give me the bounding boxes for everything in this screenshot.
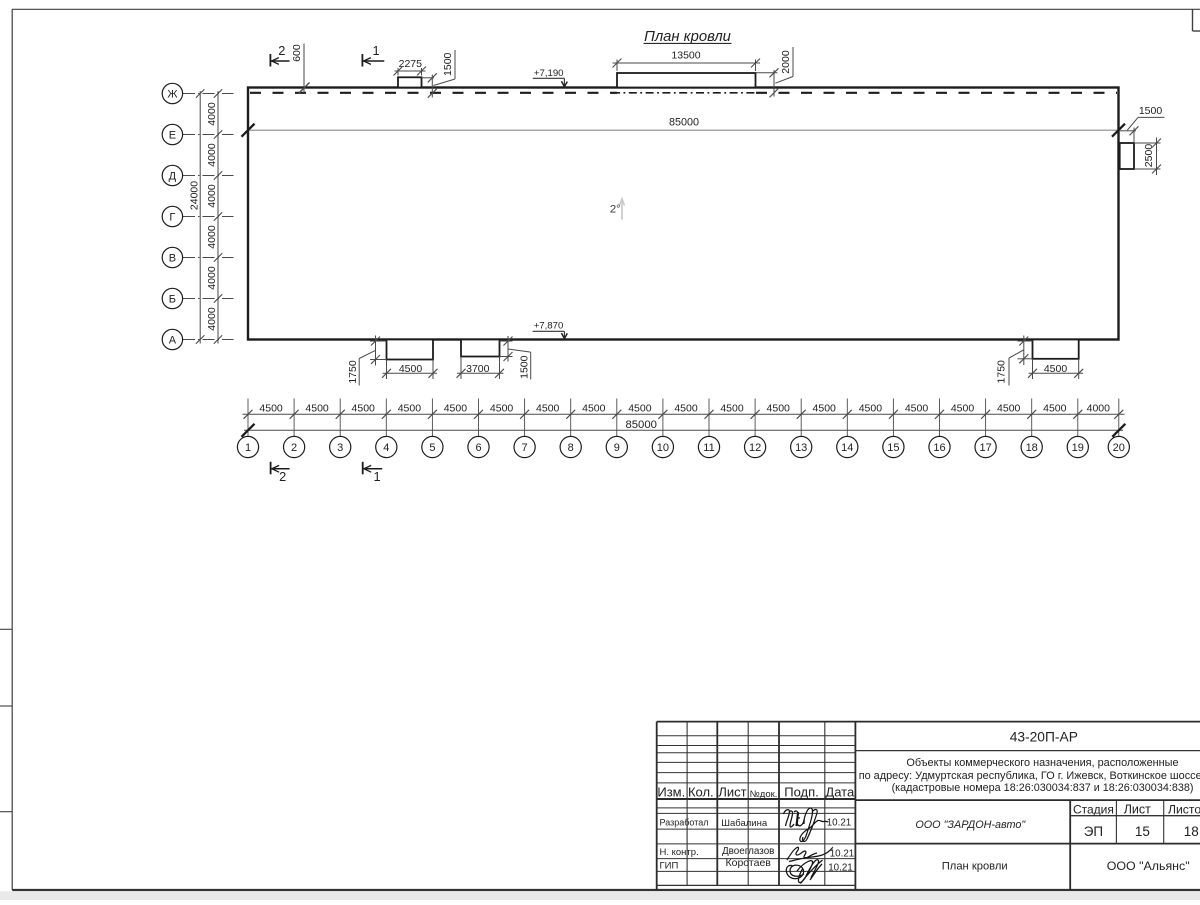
svg-text:1500: 1500 [442, 52, 454, 76]
svg-text:10.21: 10.21 [827, 818, 852, 829]
svg-text:3700: 3700 [466, 363, 490, 375]
svg-text:4500: 4500 [490, 403, 514, 415]
svg-text:по адресу: Удмуртская республи: по адресу: Удмуртская республика, ГО г. … [859, 770, 1200, 782]
svg-text:План кровли: План кровли [942, 861, 1008, 873]
svg-text:Разработал: Разработал [660, 818, 709, 828]
svg-text:4: 4 [383, 442, 389, 454]
svg-text:План кровли: План кровли [644, 29, 731, 45]
svg-text:4000: 4000 [1087, 403, 1111, 415]
svg-text:10: 10 [657, 442, 669, 454]
svg-text:4500: 4500 [905, 403, 929, 415]
svg-text:4500: 4500 [720, 403, 744, 415]
svg-text:4500: 4500 [399, 363, 423, 375]
svg-text:4000: 4000 [206, 102, 218, 126]
svg-text:Листов: Листов [1168, 802, 1200, 816]
svg-text:2000: 2000 [780, 50, 792, 74]
svg-text:Лист: Лист [1124, 802, 1151, 816]
svg-text:1750: 1750 [996, 360, 1008, 384]
svg-text:4500: 4500 [305, 403, 329, 415]
svg-text:1: 1 [372, 43, 379, 58]
svg-text:17: 17 [979, 442, 991, 454]
svg-text:7: 7 [522, 442, 528, 454]
svg-text:+7,190: +7,190 [534, 68, 564, 79]
svg-text:1750: 1750 [347, 360, 359, 384]
svg-text:2: 2 [291, 442, 297, 454]
svg-text:ГИП: ГИП [660, 861, 679, 872]
svg-text:4500: 4500 [1044, 363, 1068, 375]
svg-text:9: 9 [614, 442, 620, 454]
svg-text:4500: 4500 [859, 403, 883, 415]
svg-text:Объекты коммерческого назначен: Объекты коммерческого назначения, распол… [906, 757, 1178, 769]
svg-text:+7,870: +7,870 [534, 321, 564, 332]
svg-text:18: 18 [1026, 442, 1038, 454]
svg-text:4500: 4500 [582, 403, 606, 415]
svg-text:6: 6 [475, 442, 481, 454]
svg-text:А: А [169, 334, 177, 346]
svg-text:5: 5 [429, 442, 435, 454]
svg-text:Шабалина: Шабалина [721, 818, 768, 829]
svg-text:Двоеглазов: Двоеглазов [722, 846, 775, 857]
svg-text:43-20П-АР: 43-20П-АР [1010, 730, 1078, 745]
svg-text:4500: 4500 [628, 403, 652, 415]
svg-text:3: 3 [337, 442, 343, 454]
svg-text:1500: 1500 [519, 355, 531, 379]
svg-text:4000: 4000 [206, 184, 218, 208]
svg-text:85000: 85000 [669, 116, 699, 128]
svg-text:Изм.: Изм. [657, 784, 685, 799]
svg-text:ЭП: ЭП [1084, 824, 1103, 839]
svg-text:ООО "Альянс": ООО "Альянс" [1107, 859, 1190, 873]
svg-text:4500: 4500 [444, 403, 468, 415]
svg-text:№док.: №док. [750, 789, 778, 800]
svg-text:В: В [169, 252, 176, 264]
svg-text:19: 19 [1072, 442, 1084, 454]
svg-text:Г: Г [169, 211, 175, 223]
svg-text:2: 2 [278, 43, 285, 58]
svg-text:18: 18 [1184, 824, 1199, 839]
svg-text:Коротаев: Коротаев [726, 857, 772, 869]
svg-text:Кол.: Кол. [688, 784, 714, 799]
svg-text:Б: Б [169, 293, 176, 305]
svg-text:12: 12 [749, 442, 761, 454]
svg-text:Е: Е [169, 129, 176, 141]
svg-text:4500: 4500 [813, 403, 837, 415]
svg-text:10.21: 10.21 [830, 848, 855, 859]
svg-text:24000: 24000 [188, 181, 200, 210]
svg-text:600: 600 [291, 44, 303, 62]
svg-text:2°: 2° [610, 204, 621, 216]
svg-text:10.21: 10.21 [828, 862, 853, 873]
svg-text:13: 13 [795, 442, 807, 454]
svg-text:4000: 4000 [206, 225, 218, 249]
svg-text:4500: 4500 [951, 403, 975, 415]
svg-text:2500: 2500 [1143, 144, 1155, 168]
svg-text:Д: Д [169, 170, 177, 182]
svg-text:16: 16 [933, 442, 945, 454]
svg-text:Ж: Ж [167, 88, 177, 100]
svg-text:20: 20 [1113, 442, 1125, 454]
svg-text:14: 14 [841, 442, 853, 454]
svg-text:4000: 4000 [206, 307, 218, 331]
svg-text:1500: 1500 [1139, 105, 1163, 117]
svg-text:15: 15 [1135, 824, 1150, 839]
svg-text:4500: 4500 [674, 403, 698, 415]
svg-text:4500: 4500 [352, 403, 376, 415]
svg-text:Дата: Дата [825, 784, 855, 799]
svg-text:4500: 4500 [259, 403, 283, 415]
svg-text:4000: 4000 [206, 266, 218, 290]
svg-text:Стадия: Стадия [1073, 802, 1114, 816]
svg-text:(кадастровые номера 18:26:0300: (кадастровые номера 18:26:030034:837 и 1… [892, 782, 1194, 794]
svg-text:2: 2 [279, 469, 286, 484]
svg-text:Подп.: Подп. [784, 784, 819, 799]
svg-text:13500: 13500 [671, 50, 700, 62]
svg-text:4000: 4000 [206, 143, 218, 167]
svg-text:8: 8 [568, 442, 574, 454]
svg-text:4500: 4500 [997, 403, 1021, 415]
svg-text:4500: 4500 [536, 403, 560, 415]
svg-text:4500: 4500 [398, 403, 422, 415]
svg-text:ООО "ЗАРДОН-авто": ООО "ЗАРДОН-авто" [915, 819, 1026, 831]
svg-text:85000: 85000 [625, 419, 656, 431]
svg-text:1: 1 [245, 442, 251, 454]
svg-text:11: 11 [703, 442, 714, 454]
svg-text:4500: 4500 [1043, 403, 1067, 415]
svg-text:1: 1 [373, 469, 380, 484]
svg-text:2275: 2275 [399, 58, 423, 70]
svg-text:15: 15 [887, 442, 899, 454]
svg-text:Н. контр.: Н. контр. [660, 847, 699, 858]
svg-text:4500: 4500 [767, 403, 791, 415]
svg-text:Лист: Лист [718, 784, 746, 799]
